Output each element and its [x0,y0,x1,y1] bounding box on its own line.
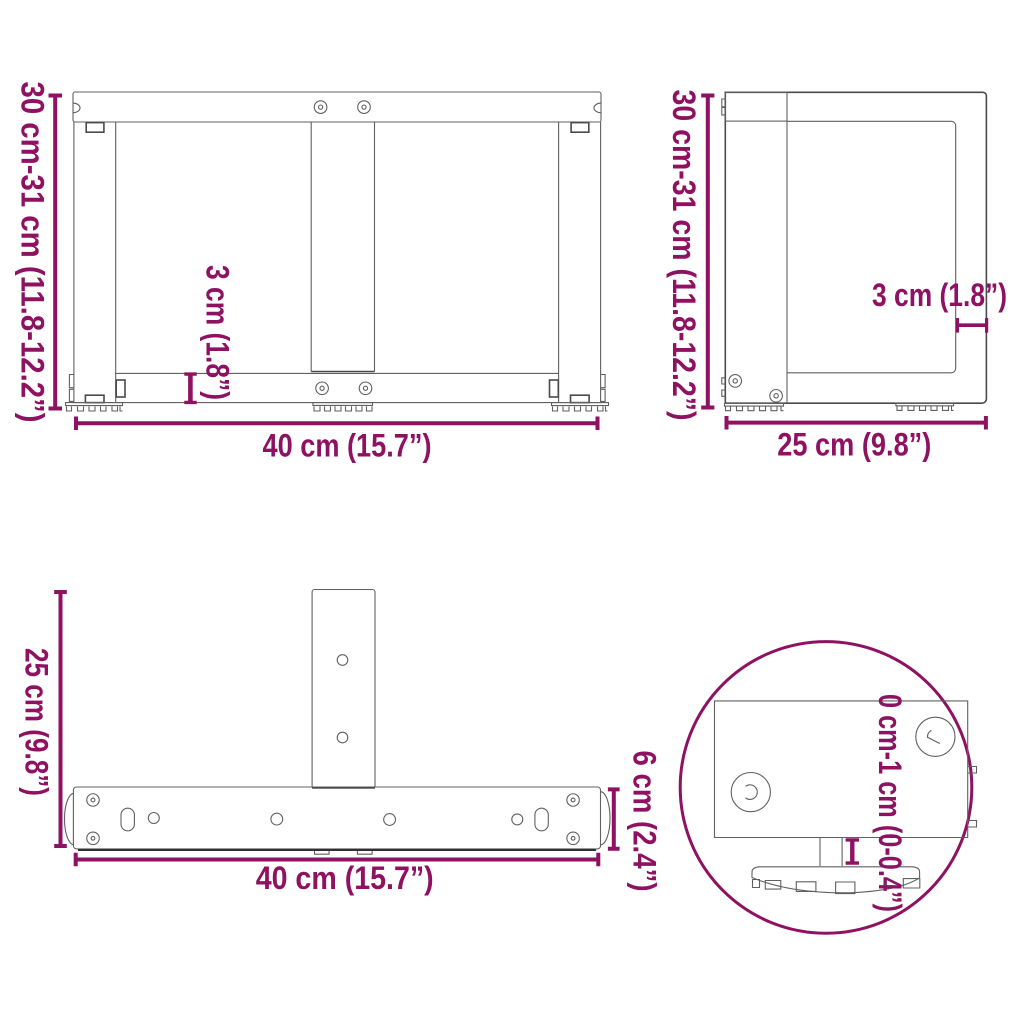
svg-text:25 cm (9.8”): 25 cm (9.8”) [777,427,931,463]
svg-text:30 cm-31 cm (11.8-12.2”): 30 cm-31 cm (11.8-12.2”) [15,82,51,423]
svg-text:6 cm (2.4”): 6 cm (2.4”) [627,751,663,892]
svg-text:40 cm (15.7”): 40 cm (15.7”) [256,860,434,896]
svg-text:25 cm (9.8”): 25 cm (9.8”) [19,648,55,796]
svg-text:3 cm (1.8”): 3 cm (1.8”) [199,265,235,400]
svg-text:40 cm (15.7”): 40 cm (15.7”) [263,428,432,464]
svg-text:3 cm (1.8”): 3 cm (1.8”) [872,277,1007,313]
svg-text:30 cm-31 cm (11.8-12.2”): 30 cm-31 cm (11.8-12.2”) [666,90,702,421]
svg-text:0 cm-1 cm (0-0.4”): 0 cm-1 cm (0-0.4”) [872,694,908,912]
